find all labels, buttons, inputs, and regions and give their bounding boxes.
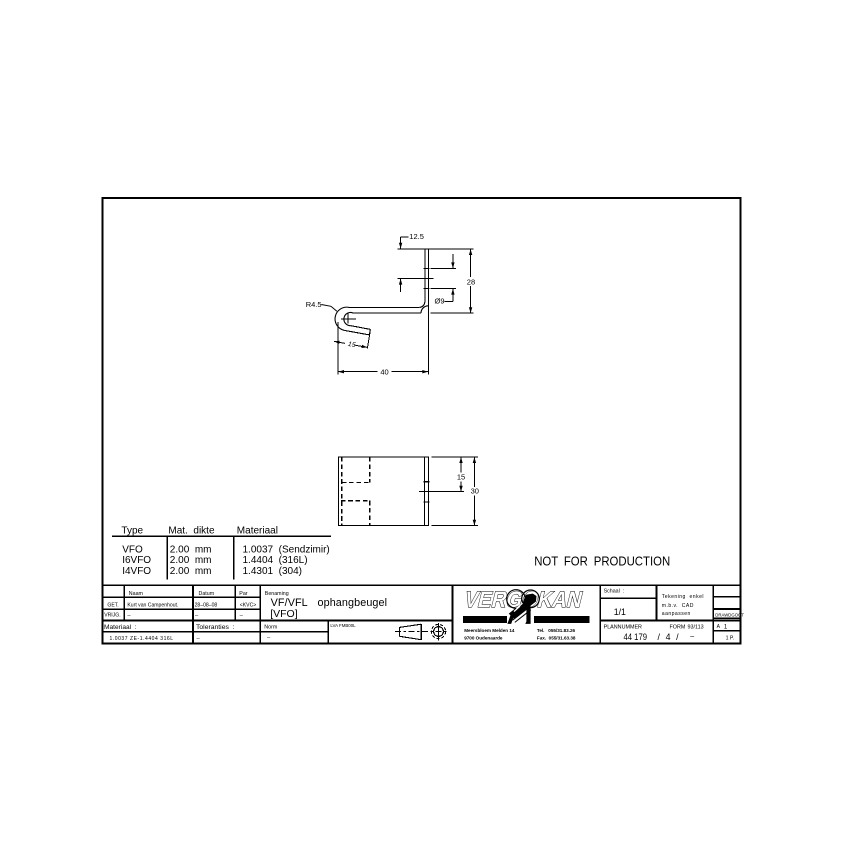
svg-text:Tekening enkel: Tekening enkel <box>662 594 704 600</box>
svg-text:1.4404 (316L): 1.4404 (316L) <box>243 555 308 566</box>
svg-text:<KVC>: <KVC> <box>240 603 256 609</box>
svg-text:Tel. 055/31.83.26: Tel. 055/31.83.26 <box>537 628 576 633</box>
svg-text:Par: Par <box>239 591 247 597</box>
svg-text:15: 15 <box>347 341 356 349</box>
svg-text:Type: Type <box>121 526 143 537</box>
svg-text:m.b.v. CAD: m.b.v. CAD <box>662 603 694 609</box>
svg-text:VF/VFL ophangbeugel: VF/VFL ophangbeugel <box>271 597 388 609</box>
svg-text:Fax. 055/31.63.38: Fax. 055/31.63.38 <box>537 636 576 641</box>
svg-text:15: 15 <box>457 473 465 482</box>
svg-text:Ø9: Ø9 <box>435 297 445 306</box>
svg-text:44 179: 44 179 <box>624 632 648 642</box>
svg-text:Mat. dikte: Mat. dikte <box>168 526 215 537</box>
svg-text:R4.5: R4.5 <box>306 300 322 309</box>
svg-text:Materiaal: Materiaal <box>237 526 278 537</box>
svg-text:1.4301 (304): 1.4301 (304) <box>243 566 303 577</box>
svg-text:1/1: 1/1 <box>614 607 626 617</box>
svg-text:9700 Oudenaarde: 9700 Oudenaarde <box>464 636 503 641</box>
svg-text:40: 40 <box>380 367 388 376</box>
svg-text:1.0037 ZE-1.4404 316L: 1.0037 ZE-1.4404 316L <box>110 636 174 642</box>
svg-text:Norm: Norm <box>264 625 278 631</box>
svg-text:[VFO]: [VFO] <box>270 608 298 620</box>
svg-text:Naam: Naam <box>129 591 144 597</box>
svg-text:2.00 mm: 2.00 mm <box>170 545 212 556</box>
svg-text:28: 28 <box>467 277 475 286</box>
svg-text:LVA FMB00L: LVA FMB00L <box>330 623 356 628</box>
svg-text:Schaal :: Schaal : <box>604 588 625 594</box>
svg-text:2.00 mm: 2.00 mm <box>170 555 212 566</box>
svg-text:/ 4 /: / 4 / <box>658 632 680 642</box>
svg-text:I4VFO: I4VFO <box>122 566 151 577</box>
svg-text:30: 30 <box>471 487 479 496</box>
svg-text:FORM: FORM <box>670 624 686 630</box>
svg-text:Kurt van Campenhout.: Kurt van Campenhout. <box>127 603 178 609</box>
svg-text:I6VFO: I6VFO <box>122 555 151 566</box>
svg-text:Toleranties :: Toleranties : <box>196 624 235 631</box>
svg-text:93/113: 93/113 <box>688 624 704 630</box>
svg-text:PLANNUMMER: PLANNUMMER <box>604 624 642 630</box>
svg-text:–: – <box>690 633 694 640</box>
svg-text:1 P.: 1 P. <box>726 635 735 641</box>
svg-text:VRIJG.: VRIJG. <box>104 613 120 619</box>
svg-text:28–08–08: 28–08–08 <box>195 603 218 609</box>
svg-text:aanpassen: aanpassen <box>662 611 691 617</box>
svg-text:NOT FOR PRODUCTION: NOT FOR PRODUCTION <box>534 554 670 568</box>
svg-text:Datum: Datum <box>199 591 215 597</box>
svg-text:GET.: GET. <box>107 603 118 609</box>
svg-text:VFO: VFO <box>122 545 143 556</box>
svg-text:Benaming: Benaming <box>265 591 289 597</box>
svg-text:Meersbloem Melden 14: Meersbloem Melden 14 <box>464 628 515 633</box>
svg-text:12.5: 12.5 <box>409 232 424 241</box>
svg-text:DRAWDGOOT: DRAWDGOOT <box>715 612 744 617</box>
svg-text:1.0037 (Sendzimir): 1.0037 (Sendzimir) <box>243 545 330 556</box>
svg-text:2.00 mm: 2.00 mm <box>170 566 212 577</box>
svg-text:Materiaal :: Materiaal : <box>104 624 137 631</box>
